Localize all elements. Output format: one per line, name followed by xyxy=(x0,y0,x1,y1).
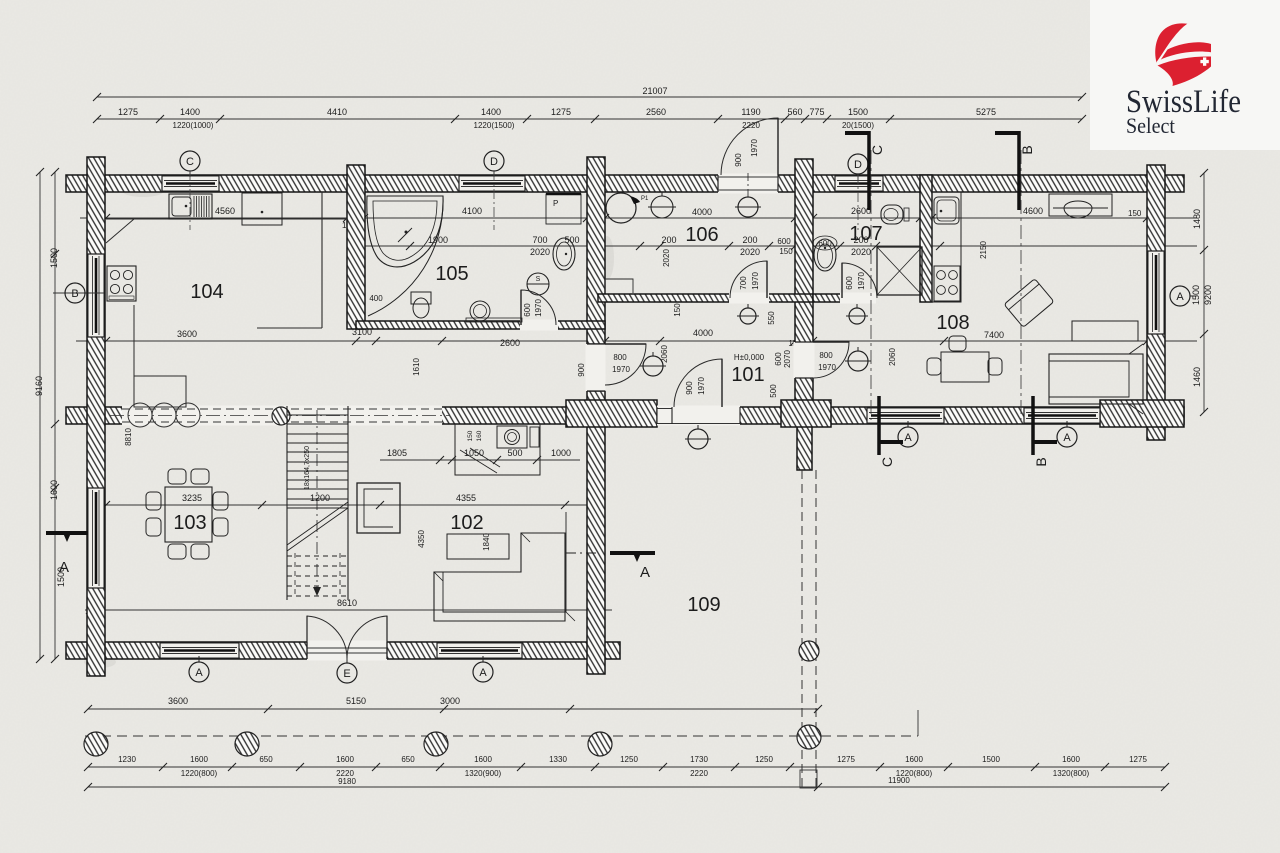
svg-text:4350: 4350 xyxy=(417,530,426,548)
svg-text:1000: 1000 xyxy=(551,448,571,458)
svg-text:1200: 1200 xyxy=(310,493,330,503)
svg-text:1190: 1190 xyxy=(741,107,760,117)
svg-text:600: 600 xyxy=(845,276,854,290)
svg-text:1970: 1970 xyxy=(857,272,866,290)
svg-text:21007: 21007 xyxy=(642,86,667,96)
svg-text:104: 104 xyxy=(190,281,223,303)
svg-text:D: D xyxy=(490,156,498,168)
svg-text:700: 700 xyxy=(739,276,748,290)
svg-text:1600: 1600 xyxy=(190,755,208,764)
svg-text:1460: 1460 xyxy=(1192,367,1202,387)
svg-text:500: 500 xyxy=(507,448,522,458)
svg-text:1600: 1600 xyxy=(1062,755,1080,764)
svg-text:8610: 8610 xyxy=(337,598,357,608)
svg-text:2060: 2060 xyxy=(888,348,897,366)
svg-text:4000: 4000 xyxy=(693,328,713,338)
svg-text:4100: 4100 xyxy=(462,206,482,216)
svg-text:1500: 1500 xyxy=(1191,285,1201,305)
svg-text:A: A xyxy=(479,667,487,679)
svg-text:B: B xyxy=(1019,145,1035,154)
svg-text:2020: 2020 xyxy=(851,247,871,257)
svg-text:1050: 1050 xyxy=(464,448,484,458)
svg-text:775: 775 xyxy=(809,107,824,117)
svg-text:D: D xyxy=(854,159,862,171)
svg-text:Select: Select xyxy=(1126,113,1175,138)
svg-text:20(1500): 20(1500) xyxy=(842,121,874,130)
svg-text:650: 650 xyxy=(401,755,415,764)
svg-text:101: 101 xyxy=(731,364,764,386)
svg-text:5150: 5150 xyxy=(346,696,366,706)
svg-text:900: 900 xyxy=(685,381,694,395)
svg-text:1275: 1275 xyxy=(118,107,138,117)
svg-text:200: 200 xyxy=(661,235,676,245)
svg-text:1250: 1250 xyxy=(755,755,773,764)
svg-text:1220(1000): 1220(1000) xyxy=(173,121,214,130)
svg-text:5275: 5275 xyxy=(976,107,996,117)
svg-text:2020: 2020 xyxy=(530,247,550,257)
svg-text:550: 550 xyxy=(767,311,776,325)
svg-text:1600: 1600 xyxy=(474,755,492,764)
svg-text:4410: 4410 xyxy=(327,107,347,117)
svg-text:1220(1500): 1220(1500) xyxy=(474,121,515,130)
svg-text:1400: 1400 xyxy=(180,107,200,117)
svg-text:A: A xyxy=(1176,291,1184,303)
svg-text:A: A xyxy=(195,667,203,679)
svg-text:A: A xyxy=(1063,432,1071,444)
svg-text:1275: 1275 xyxy=(1129,755,1147,764)
svg-text:105: 105 xyxy=(435,263,468,285)
svg-text:2600: 2600 xyxy=(500,338,520,348)
svg-text:C: C xyxy=(186,156,194,168)
svg-text:B: B xyxy=(1033,457,1049,466)
svg-text:2070: 2070 xyxy=(783,350,792,368)
svg-text:1320(900): 1320(900) xyxy=(465,769,502,778)
svg-text:150: 150 xyxy=(779,247,793,256)
svg-text:4560: 4560 xyxy=(215,206,235,216)
svg-text:3600: 3600 xyxy=(168,696,188,706)
svg-text:107: 107 xyxy=(849,223,882,245)
svg-text:1220(800): 1220(800) xyxy=(181,769,218,778)
svg-text:1230: 1230 xyxy=(118,755,136,764)
svg-text:109: 109 xyxy=(687,594,720,616)
svg-text:7400: 7400 xyxy=(984,330,1004,340)
svg-text:1970: 1970 xyxy=(818,363,836,372)
svg-text:1970: 1970 xyxy=(750,139,759,157)
svg-text:P: P xyxy=(553,199,558,208)
svg-text:1970: 1970 xyxy=(534,299,543,317)
svg-text:1600: 1600 xyxy=(905,755,923,764)
svg-text:S: S xyxy=(536,276,541,283)
svg-text:900: 900 xyxy=(577,363,586,377)
svg-text:1600: 1600 xyxy=(336,755,354,764)
svg-text:2020: 2020 xyxy=(662,249,671,267)
svg-text:9200: 9200 xyxy=(1203,285,1213,305)
svg-text:H±0,000: H±0,000 xyxy=(734,353,765,362)
svg-text:900: 900 xyxy=(734,153,743,167)
svg-text:160: 160 xyxy=(476,430,483,441)
svg-text:102: 102 xyxy=(450,512,483,534)
svg-text:500: 500 xyxy=(769,384,778,398)
svg-text:A: A xyxy=(640,564,650,581)
svg-text:1970: 1970 xyxy=(612,365,630,374)
svg-text:A: A xyxy=(59,559,69,576)
svg-text:106: 106 xyxy=(685,224,718,246)
svg-text:600: 600 xyxy=(777,237,791,246)
svg-text:1330: 1330 xyxy=(549,755,567,764)
svg-text:9180: 9180 xyxy=(338,777,356,786)
svg-text:4000: 4000 xyxy=(692,207,712,217)
svg-text:8810: 8810 xyxy=(124,428,133,446)
svg-text:400: 400 xyxy=(369,294,383,303)
svg-text:4600: 4600 xyxy=(1023,206,1043,216)
svg-text:1500: 1500 xyxy=(848,107,868,117)
svg-text:1250: 1250 xyxy=(620,755,638,764)
svg-text:1610: 1610 xyxy=(412,358,421,376)
svg-text:108: 108 xyxy=(936,312,969,334)
svg-text:150: 150 xyxy=(673,303,682,317)
svg-text:600: 600 xyxy=(523,303,532,317)
svg-text:800: 800 xyxy=(819,351,833,360)
svg-text:C: C xyxy=(869,145,885,155)
svg-text:1320(800): 1320(800) xyxy=(1053,769,1090,778)
svg-text:11900: 11900 xyxy=(888,776,910,785)
svg-text:200: 200 xyxy=(742,235,757,245)
svg-text:3235: 3235 xyxy=(182,493,202,503)
svg-text:1275: 1275 xyxy=(551,107,571,117)
svg-text:1600: 1600 xyxy=(49,480,59,500)
svg-text:2220: 2220 xyxy=(690,769,708,778)
svg-text:1970: 1970 xyxy=(697,377,706,395)
svg-text:1500: 1500 xyxy=(49,248,59,268)
svg-text:A: A xyxy=(904,432,912,444)
svg-text:1970: 1970 xyxy=(751,272,760,290)
svg-text:1400: 1400 xyxy=(481,107,501,117)
svg-text:3600: 3600 xyxy=(177,329,197,339)
svg-text:1500: 1500 xyxy=(982,755,1000,764)
svg-text:2150: 2150 xyxy=(979,241,988,259)
svg-text:18x164,7x250: 18x164,7x250 xyxy=(304,446,311,490)
svg-text:1840: 1840 xyxy=(482,533,491,551)
svg-text:650: 650 xyxy=(259,755,273,764)
svg-text:4355: 4355 xyxy=(456,493,476,503)
svg-text:1730: 1730 xyxy=(690,755,708,764)
svg-text:2020: 2020 xyxy=(740,247,760,257)
svg-text:B: B xyxy=(71,288,78,300)
svg-text:1805: 1805 xyxy=(387,448,407,458)
svg-text:150: 150 xyxy=(1128,209,1142,218)
svg-text:600: 600 xyxy=(774,352,783,366)
svg-text:1480: 1480 xyxy=(1192,209,1202,229)
svg-text:2560: 2560 xyxy=(646,107,666,117)
svg-text:1275: 1275 xyxy=(837,755,855,764)
svg-text:C: C xyxy=(879,457,895,467)
svg-text:3000: 3000 xyxy=(440,696,460,706)
svg-text:560: 560 xyxy=(787,107,802,117)
svg-text:E: E xyxy=(343,668,350,680)
svg-text:700: 700 xyxy=(532,235,547,245)
svg-text:P1: P1 xyxy=(641,196,649,202)
svg-text:800: 800 xyxy=(613,353,627,362)
svg-text:103: 103 xyxy=(173,512,206,534)
svg-text:150: 150 xyxy=(467,430,474,441)
svg-text:9160: 9160 xyxy=(34,376,44,396)
